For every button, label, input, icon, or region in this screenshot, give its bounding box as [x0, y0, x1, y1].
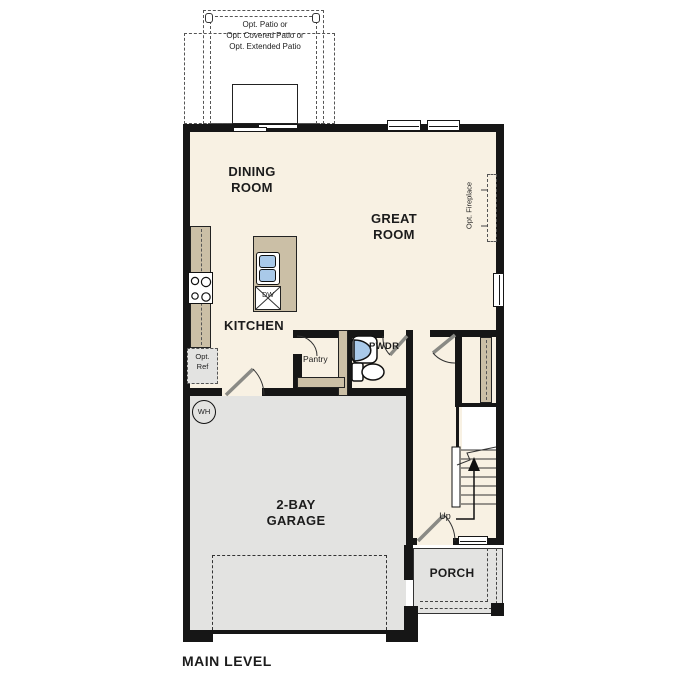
fireplace-outline — [487, 174, 497, 242]
room-label-great: GREAT ROOM — [344, 211, 444, 244]
stove — [188, 272, 213, 304]
wall-pantry-left-lower — [293, 354, 302, 396]
wall-closet-top — [430, 330, 496, 337]
dining-line1: DINING — [202, 164, 302, 180]
garage-entry-opening — [222, 388, 262, 396]
window-glass-line — [389, 126, 419, 127]
window-great-room-2 — [427, 120, 460, 131]
garage-door-outline — [212, 555, 387, 630]
opt-ref-label-line2: Ref — [188, 362, 217, 372]
water-heater-label: WH — [198, 407, 211, 416]
room-label-powder: PWDR — [369, 341, 411, 353]
room-label-kitchen: KITCHEN — [204, 318, 304, 334]
dishwasher-label: DW — [255, 292, 281, 299]
window-great-room-side — [493, 273, 504, 307]
great-line1: GREAT — [344, 211, 444, 227]
stairwell-open-below — [462, 407, 496, 450]
wall-porch-left — [404, 545, 413, 580]
patio-label-line2: Opt. Covered Patio or — [196, 31, 334, 42]
plan-title: MAIN LEVEL — [182, 653, 342, 671]
patio-label-line1: Opt. Patio or — [196, 20, 334, 31]
patio-label-line3: Opt. Extended Patio — [196, 42, 334, 53]
patio-label: Opt. Patio or Opt. Covered Patio or Opt.… — [196, 20, 334, 52]
room-label-pantry: Pantry — [303, 354, 343, 365]
wall-pantry-powder-divider — [348, 330, 352, 396]
garage-line2: GARAGE — [236, 513, 356, 529]
patio-landing — [232, 84, 298, 124]
porch-post — [491, 603, 504, 616]
garage-door-threshold — [213, 630, 386, 634]
great-line2: ROOM — [344, 227, 444, 243]
water-heater: WH — [192, 400, 216, 424]
floor-plan: Opt. Patio or Opt. Covered Patio or Opt.… — [0, 0, 687, 687]
fireplace-label: Opt. Fireplace — [465, 170, 476, 242]
powder-door-opening — [384, 330, 406, 338]
pantry-base-cabinet — [297, 377, 345, 388]
stairs-up-label: Up — [435, 511, 455, 522]
garage-line1: 2-BAY — [236, 497, 356, 513]
wall-garage-bottom-right — [386, 630, 418, 642]
window-great-room-1 — [387, 120, 421, 131]
closet-rod-dashed-line — [486, 340, 487, 400]
wall-corridor-left — [406, 330, 413, 545]
window-glass-line — [429, 126, 458, 127]
front-door-opening — [417, 538, 453, 545]
window-glass-line — [460, 541, 486, 542]
window-foyer — [458, 536, 488, 545]
dining-line2: ROOM — [202, 180, 302, 196]
wall-stair-left — [456, 407, 459, 507]
sliding-door-panel-moving — [233, 127, 267, 132]
wall-closet-left — [455, 330, 462, 407]
wall-garage-bottom-left — [183, 630, 213, 642]
optional-refrigerator: Opt. Ref — [187, 348, 218, 384]
opt-ref-label-line1: Opt. — [188, 352, 217, 362]
room-label-porch: PORCH — [416, 566, 488, 581]
island-sink-bowl-2 — [259, 269, 276, 282]
room-label-garage: 2-BAY GARAGE — [236, 497, 356, 530]
island-sink-bowl-1 — [259, 255, 276, 268]
window-glass-line — [499, 275, 500, 305]
room-label-dining: DINING ROOM — [202, 164, 302, 197]
closet-rod-shelf — [480, 337, 492, 403]
wall-right — [496, 124, 504, 545]
